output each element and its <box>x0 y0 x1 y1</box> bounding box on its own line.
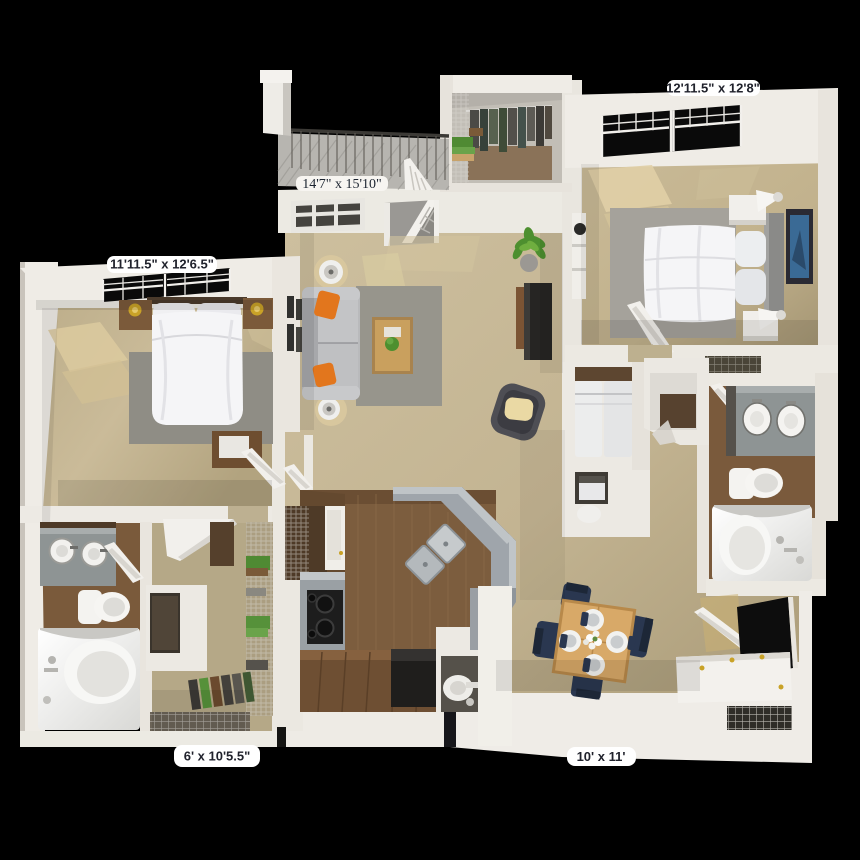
svg-text:14'7" x 15'10": 14'7" x 15'10" <box>302 177 381 192</box>
svg-text:11'11.5" x 12'6.5": 11'11.5" x 12'6.5" <box>110 257 214 272</box>
svg-text:10' x 11': 10' x 11' <box>577 749 626 764</box>
svg-text:12'11.5" x 12'8": 12'11.5" x 12'8" <box>666 81 760 96</box>
svg-text:6' x 10'5.5": 6' x 10'5.5" <box>184 749 251 764</box>
